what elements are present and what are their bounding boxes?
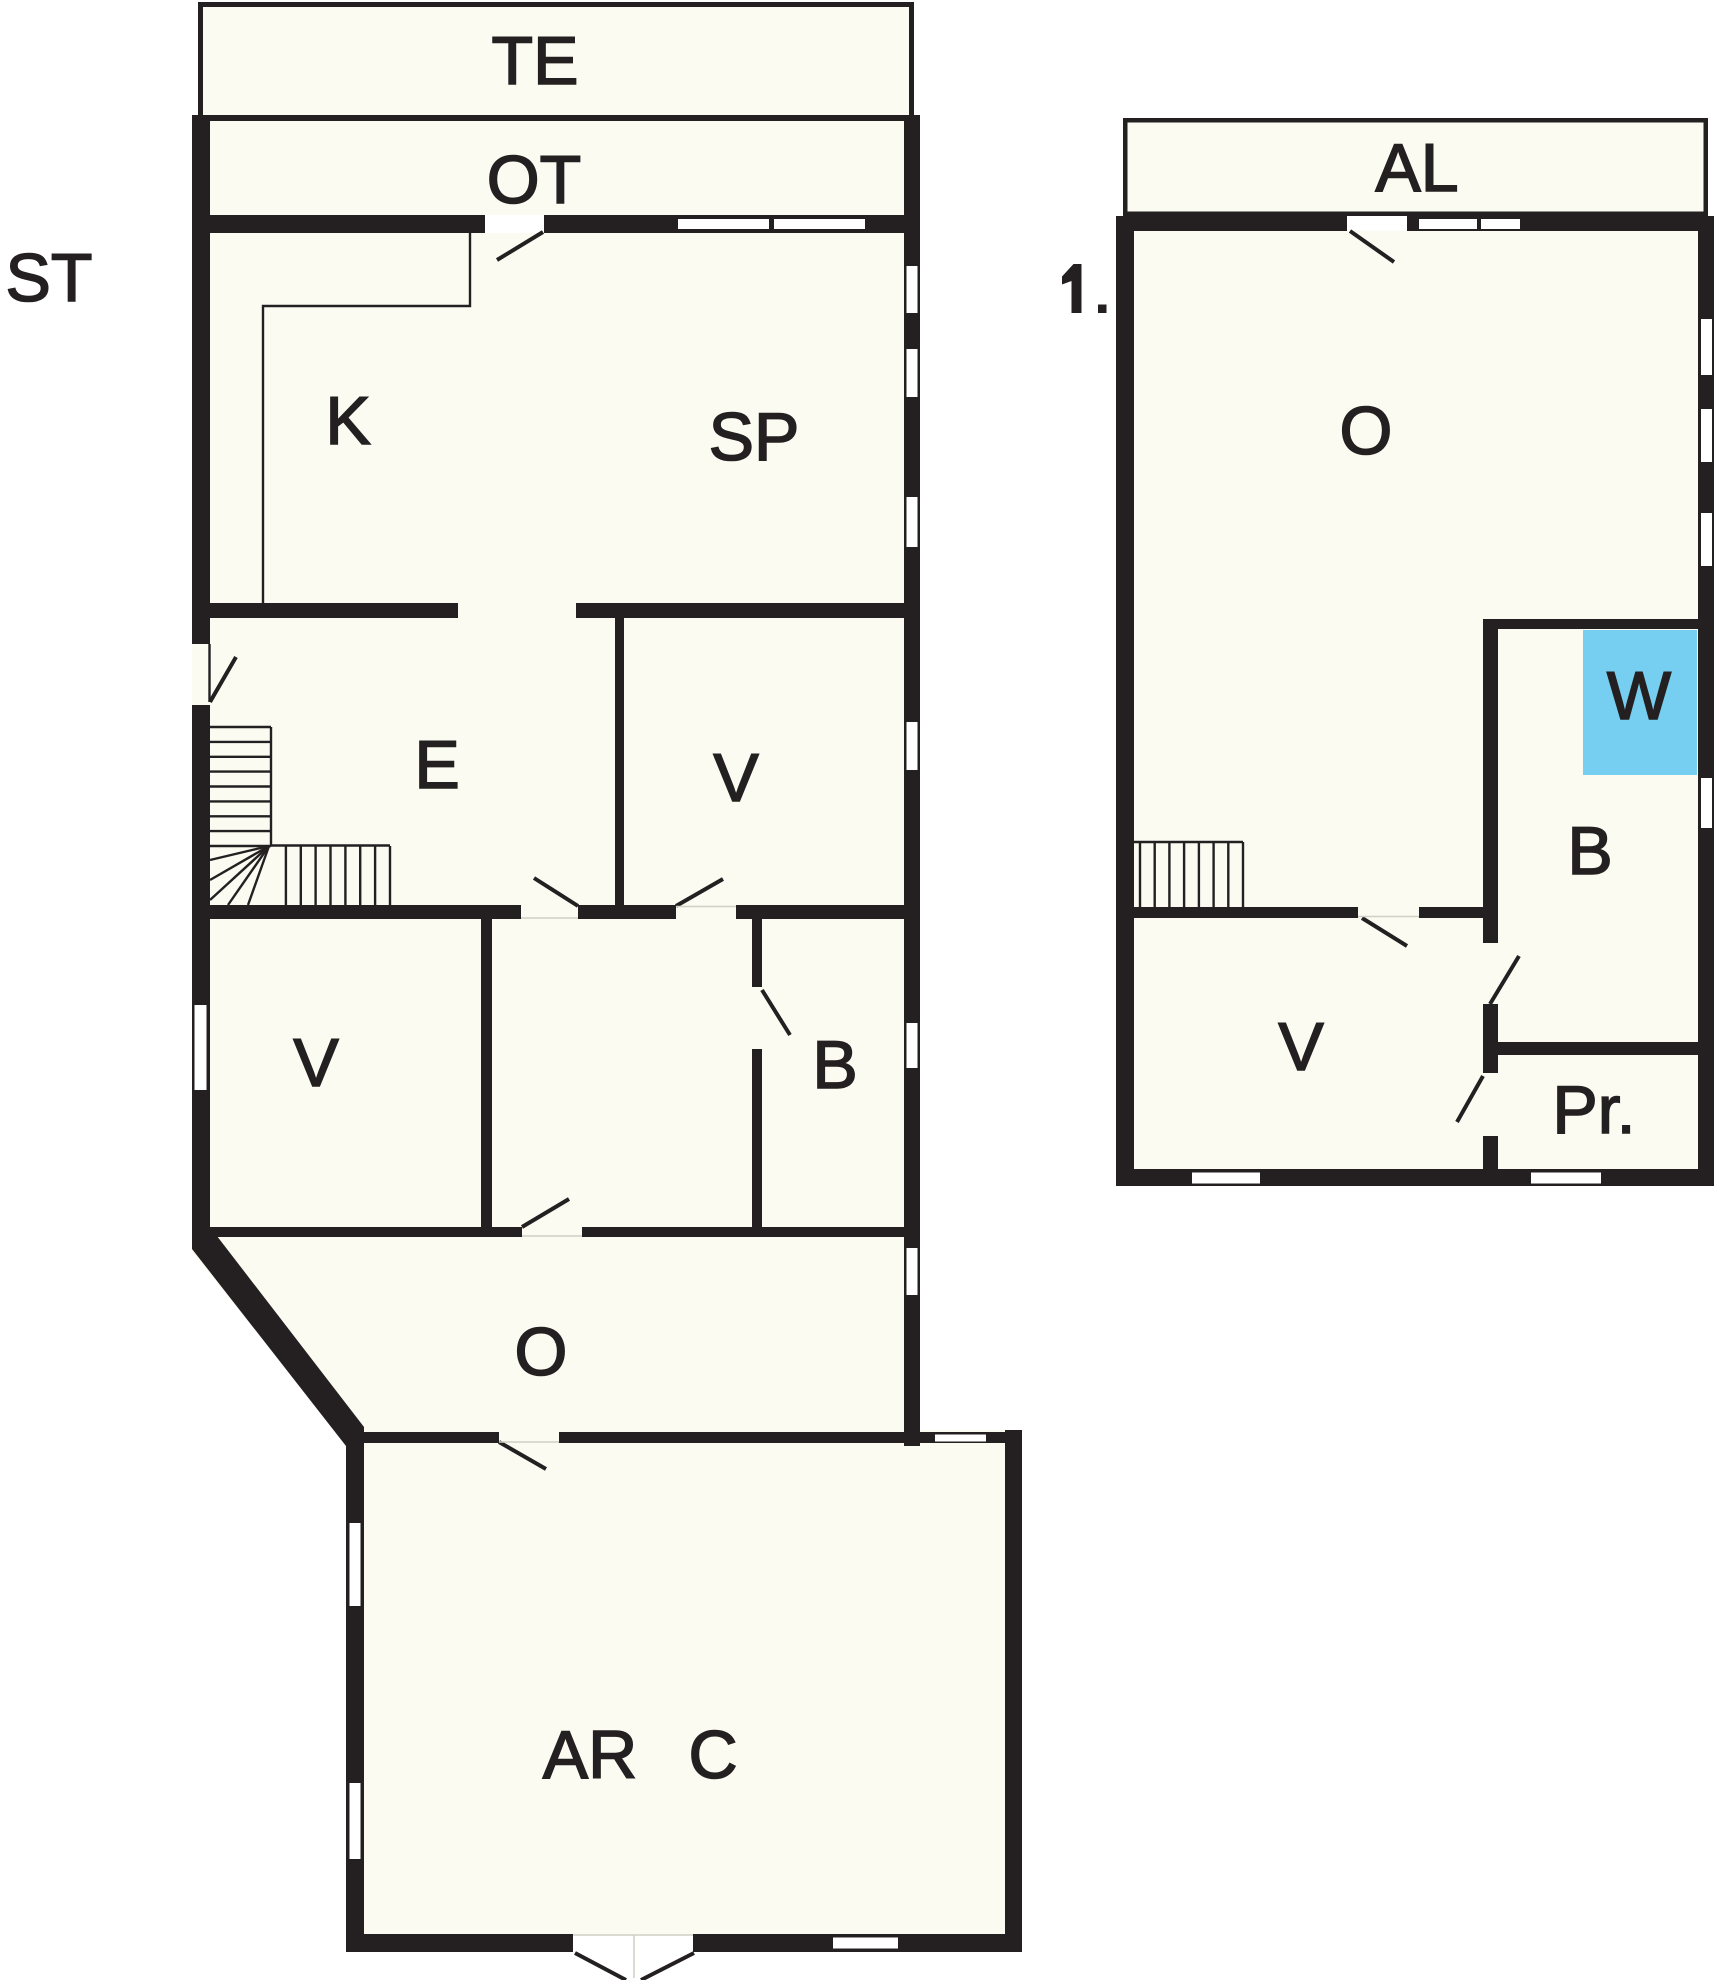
svg-text:TE: TE	[492, 23, 579, 99]
svg-text:B: B	[1567, 813, 1612, 889]
svg-text:O: O	[515, 1314, 568, 1390]
svg-text:C: C	[688, 1717, 737, 1793]
svg-text:V: V	[1278, 1009, 1324, 1085]
svg-text:Pr.: Pr.	[1552, 1072, 1635, 1148]
svg-text:W: W	[1607, 658, 1671, 734]
svg-text:K: K	[325, 383, 370, 459]
svg-text:OT: OT	[487, 142, 581, 218]
svg-text:SP: SP	[709, 399, 800, 475]
svg-text:AR: AR	[543, 1717, 637, 1793]
svg-text:AL: AL	[1375, 130, 1458, 206]
svg-text:E: E	[414, 727, 459, 803]
svg-text:V: V	[293, 1025, 339, 1101]
svg-text:V: V	[713, 740, 759, 816]
svg-text:B: B	[812, 1027, 857, 1103]
svg-text:ST: ST	[6, 240, 93, 316]
svg-text:O: O	[1340, 393, 1393, 469]
